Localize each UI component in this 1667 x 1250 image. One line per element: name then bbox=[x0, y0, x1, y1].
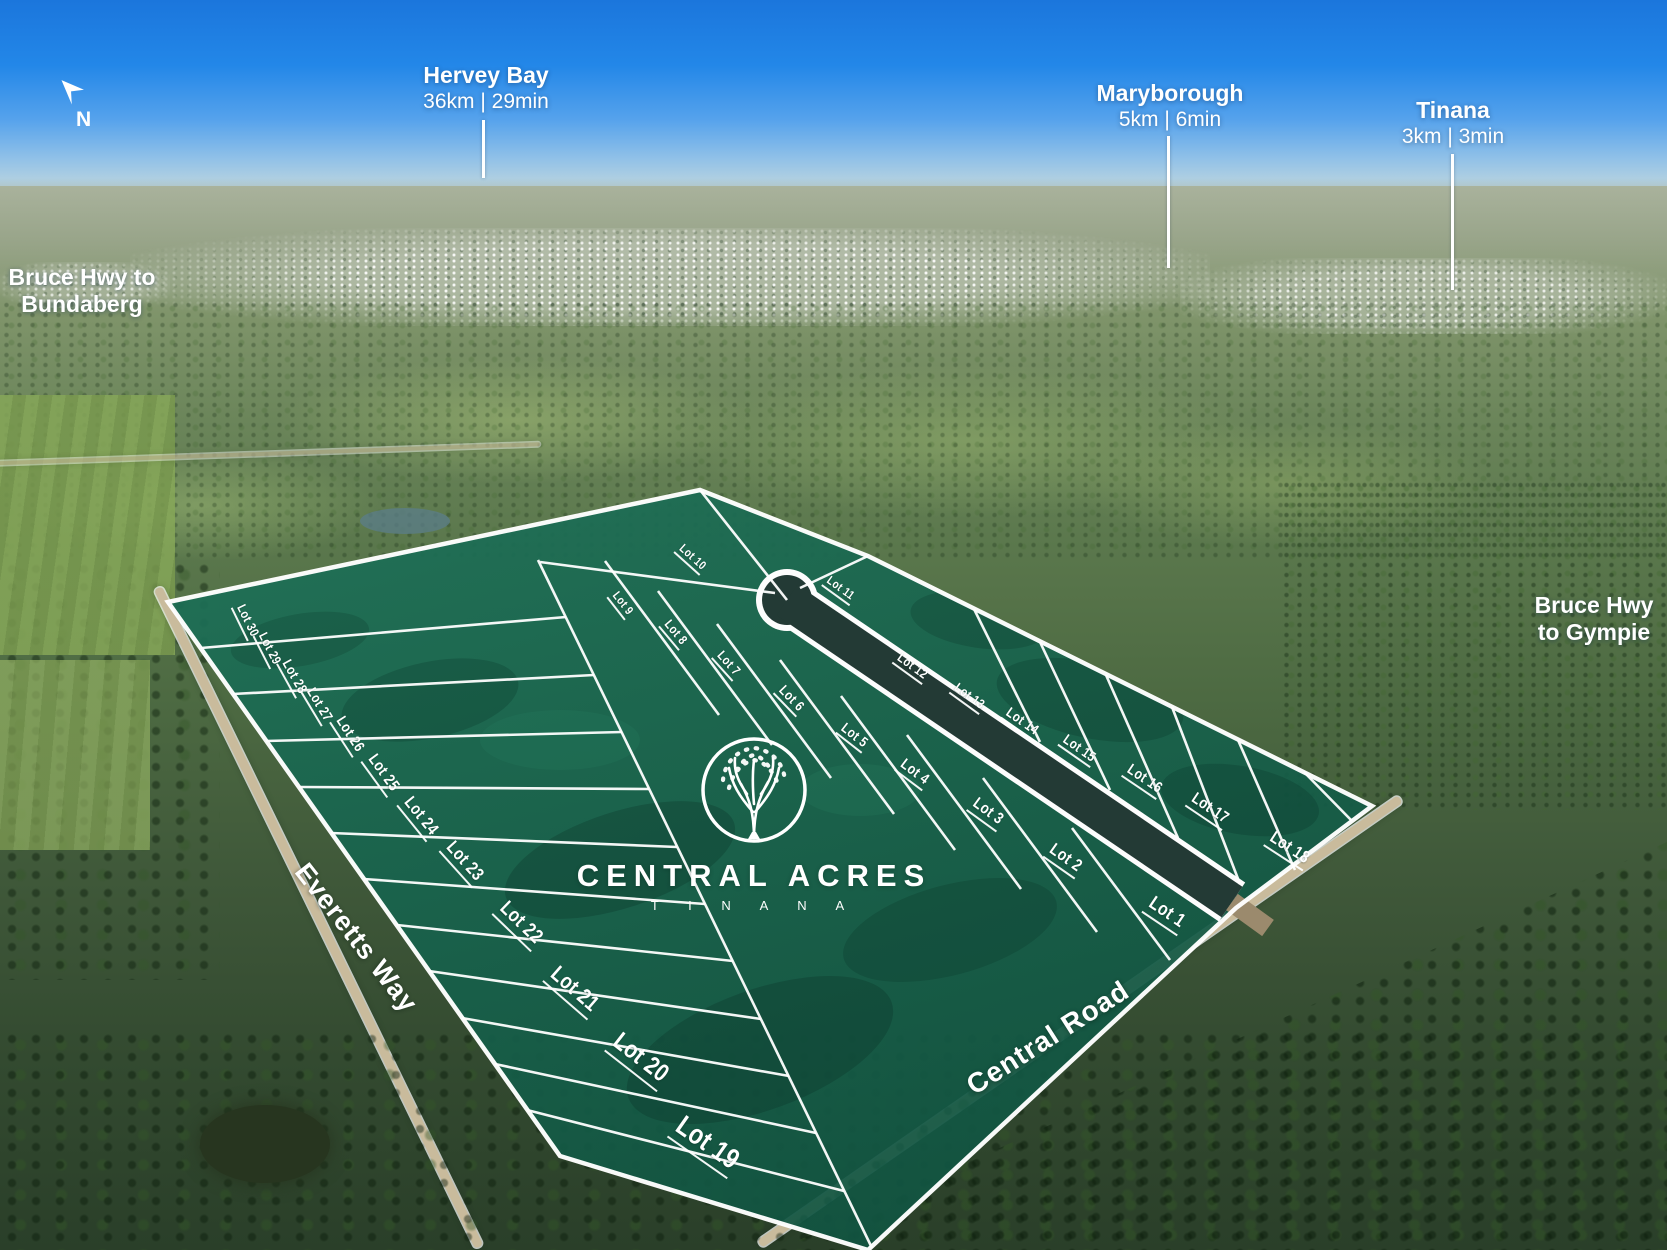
callout-title: Bruce Hwy to bbox=[9, 264, 156, 291]
callout-subtitle: to Gympie bbox=[1535, 619, 1654, 646]
callout-bruce-hwy-bundaberg: Bruce Hwy toBundaberg bbox=[9, 264, 156, 318]
compass-label: N bbox=[76, 108, 91, 132]
callout-hervey-bay: Hervey Bay36km | 29min bbox=[423, 62, 549, 114]
callout-pointer-maryborough bbox=[1167, 136, 1170, 268]
callout-pointer-tinana bbox=[1451, 154, 1454, 290]
callout-subtitle: 36km | 29min bbox=[423, 89, 549, 114]
callout-tinana: Tinana3km | 3min bbox=[1402, 97, 1504, 149]
callout-title: Tinana bbox=[1402, 97, 1504, 124]
logo-subtitle: T I N A N A bbox=[494, 898, 1014, 913]
callout-pointer-hervey-bay bbox=[482, 120, 485, 178]
callout-bruce-hwy-gympie: Bruce Hwyto Gympie bbox=[1535, 592, 1654, 646]
callout-subtitle: Bundaberg bbox=[9, 291, 156, 318]
callout-subtitle: 5km | 6min bbox=[1097, 107, 1244, 132]
compass: N bbox=[50, 70, 96, 112]
callouts-layer: Hervey Bay36km | 29minMaryborough5km | 6… bbox=[0, 0, 1667, 1250]
logo-name: CENTRAL ACRES bbox=[494, 858, 1014, 894]
callout-title: Bruce Hwy bbox=[1535, 592, 1654, 619]
callout-subtitle: 3km | 3min bbox=[1402, 124, 1504, 149]
callout-maryborough: Maryborough5km | 6min bbox=[1097, 80, 1244, 132]
aerial-estate-map: Lot 30Lot 29Lot 28Lot 27Lot 26Lot 25Lot … bbox=[0, 0, 1667, 1250]
north-arrow-icon bbox=[50, 70, 96, 112]
callout-title: Hervey Bay bbox=[423, 62, 549, 89]
callout-title: Maryborough bbox=[1097, 80, 1244, 107]
tree-logo-icon bbox=[689, 726, 819, 856]
